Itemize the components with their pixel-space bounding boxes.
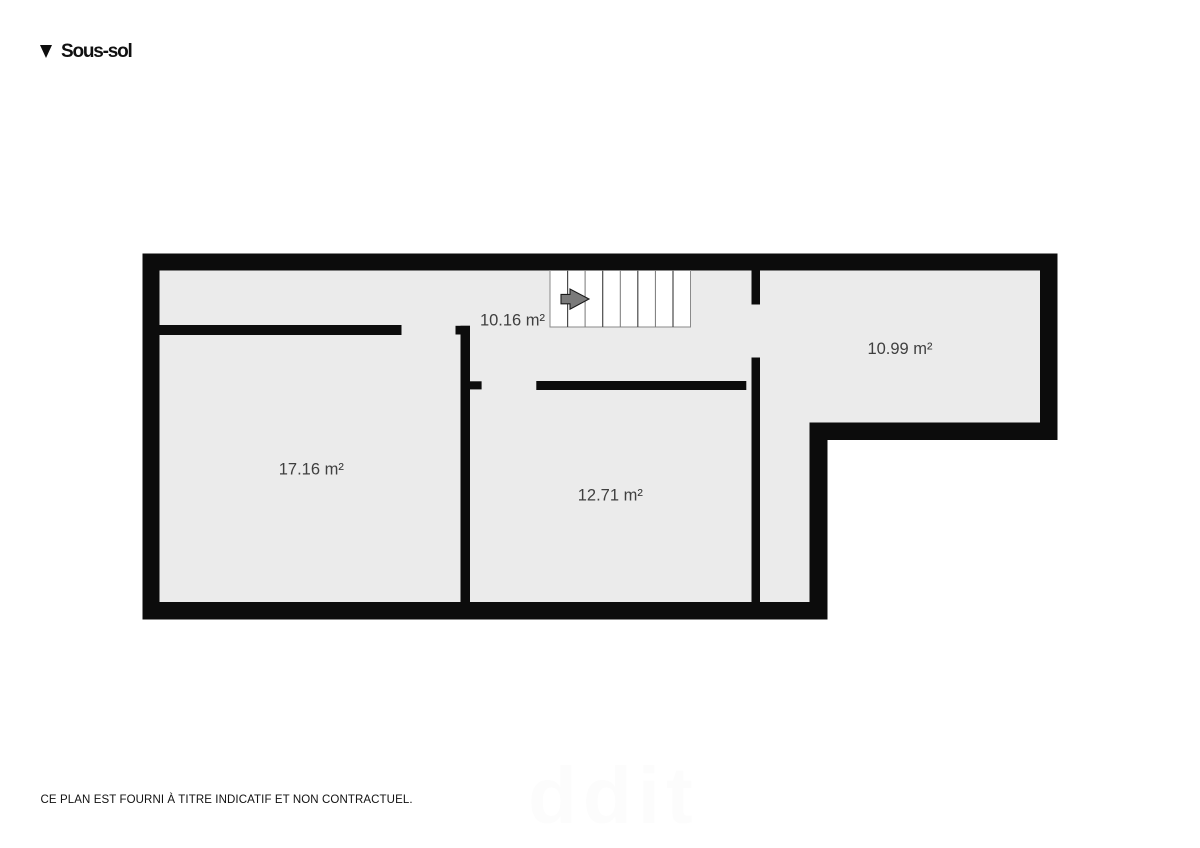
svg-text:12.71 m²: 12.71 m² — [578, 487, 644, 505]
svg-text:10.16 m²: 10.16 m² — [480, 312, 546, 330]
svg-text:10.99 m²: 10.99 m² — [867, 340, 933, 358]
svg-text:17.16 m²: 17.16 m² — [279, 461, 345, 479]
